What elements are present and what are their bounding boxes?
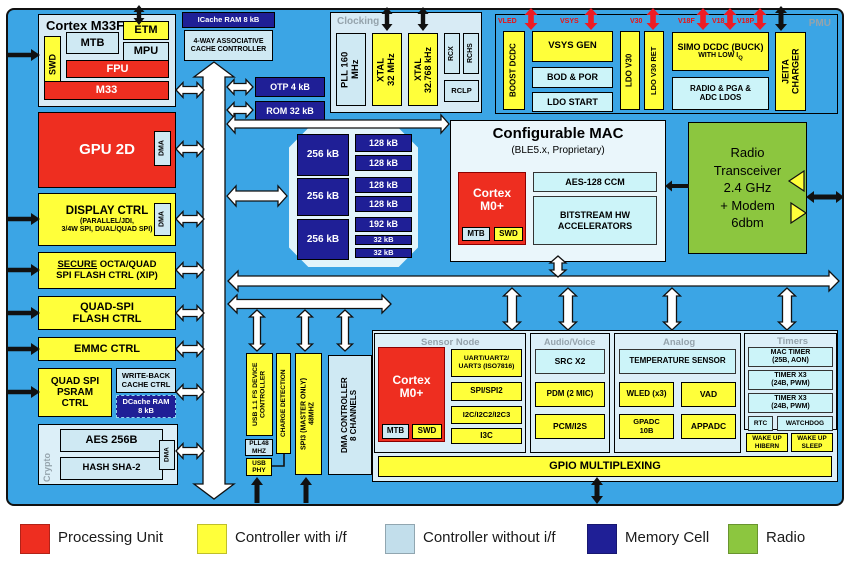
simo-sub: WITH LOW IQ [698, 52, 743, 62]
otp-block: OTP 4 kB [255, 77, 325, 97]
mac-title: Configurable MAC [451, 125, 665, 142]
spi-block: SPI/SPI2 [451, 382, 522, 401]
mtb-block: MTB [66, 32, 119, 54]
pll160-block: PLL 160 MHz [336, 33, 366, 106]
pmu-label: PMU [809, 18, 831, 29]
rail-vsys: VSYS [560, 18, 579, 25]
legend-swatch-memory-cell [587, 524, 617, 554]
charge-detection-block: CHARGE DETECTION [276, 353, 291, 454]
spi3-block: SPI3 (MASTER ONLY) 48MHZ [295, 353, 322, 475]
legend-label-controller-no-if: Controller without i/f [423, 529, 556, 546]
usb-controller-block: USB 1.1 FS DEVICE CONTROLLER [246, 353, 273, 436]
uart-block: UART/UART2/ UART3 (ISO7816) [451, 349, 522, 377]
radio-transceiver-block: Radio Transceiver 2.4 GHz + Modem 6dbm [688, 122, 807, 254]
icache-controller-block: 4-WAY ASSOCIATIVE CACHE CONTROLLER [184, 30, 273, 61]
wakeup-hibern-block: WAKE UP HIBERN [746, 433, 788, 452]
gpu-dma-tab: DMA [154, 131, 171, 166]
rcx-block: RCX [444, 33, 460, 74]
pdm-block: PDM (2 MIC) [535, 382, 605, 407]
audio-voice-label: Audio/Voice [544, 337, 595, 347]
legend-swatch-controller-no-if [385, 524, 415, 554]
clocking-label: Clocking [337, 16, 379, 27]
vad-block: VAD [681, 382, 736, 407]
wakeup-sleep-block: WAKE UP SLEEP [791, 433, 833, 452]
rtc-block: RTC [748, 416, 773, 431]
analog-label: Analog [663, 337, 695, 348]
usb-phy-block: USB PHY [246, 458, 272, 476]
radio-ldos-block: RADIO & PGA & ADC LDOS [672, 77, 769, 110]
legend-swatch-processing-unit [20, 524, 50, 554]
vsys-gen-block: VSYS GEN [532, 31, 613, 62]
secure-flash-line2: SPI FLASH CTRL (XIP) [56, 271, 158, 282]
simo-dcdc-block: SIMO DCDC (BUCK) WITH LOW IQ [672, 32, 769, 71]
mpu-block: MPU [123, 42, 169, 61]
legend-label-controller-if: Controller with i/f [235, 529, 347, 546]
display-ctrl-sub: (PARALLEL/JDI, 3/4W SPI, DUAL/QUAD SPI) [61, 218, 152, 234]
pcm-block: PCM/I2S [535, 414, 605, 439]
mac-swd-block: SWD [494, 227, 523, 241]
legend-label-processing-unit: Processing Unit [58, 529, 163, 546]
mac-cortex-m0-label: Cortex M0+ [459, 187, 525, 214]
ldo-start-block: LDO START [532, 92, 613, 112]
secure-flash-line1: SECURE OCTA/QUAD [57, 260, 156, 271]
appadc-block: APPADC [681, 414, 736, 439]
legend-swatch-radio [728, 524, 758, 554]
i2c-block: I2C/I2C2/I2C3 [451, 406, 522, 424]
ram-cell: 256 kB [297, 134, 349, 176]
secure-flash-ctrl-block: SECURE OCTA/QUAD SPI FLASH CTRL (XIP) [38, 252, 176, 289]
bitstream-accel-block: BITSTREAM HW ACCELERATORS [533, 196, 657, 245]
ram-cell: 256 kB [297, 219, 349, 260]
quad-spi-flash-ctrl-block: QUAD-SPI FLASH CTRL [38, 296, 176, 330]
dcache-ram-block: DCache RAM 8 kB [116, 395, 176, 418]
ldo-v30-ret-block: LDO V30 RET [644, 31, 664, 110]
i3c-block: I3C [451, 428, 522, 444]
apb-fast-label: AMBA APB (FAST) [252, 300, 352, 309]
rail-v18f: V18F [678, 18, 695, 25]
rom-block: ROM 32 kB [255, 101, 325, 121]
writeback-cache-ctrl-block: WRITE-BACK CACHE CTRL [116, 368, 176, 393]
src-block: SRC X2 [535, 349, 605, 374]
jeita-charger-block: JEITA CHARGER [775, 32, 806, 111]
ram-cell: 128 kB [355, 155, 412, 171]
simo-title: SIMO DCDC (BUCK) [678, 42, 764, 52]
hash-sha2-block: HASH SHA-2 [60, 457, 163, 480]
rail-v18: V18 [712, 18, 724, 25]
dma-controller-block: DMA CONTROLLER 8 CHANNELS [328, 355, 372, 475]
mac-timer-block: MAC TIMER (25B, AON) [748, 347, 833, 367]
timers-label: Timers [777, 336, 808, 347]
gpio-multiplexing-bar: GPIO MULTIPLEXING [378, 456, 832, 477]
display-dma-tab: DMA [154, 203, 171, 236]
rchs-block: RCHS [463, 33, 479, 74]
ldo-v30-block: LDO V30 [620, 31, 640, 110]
cortex-m33f-title: Cortex M33F [46, 18, 124, 33]
legend-swatch-controller-if [197, 524, 227, 554]
fpu-block: FPU [66, 60, 169, 78]
rclp-block: RCLP [444, 80, 479, 102]
etm-block: ETM [123, 21, 169, 40]
crypto-dma-tab: DMA [159, 440, 175, 470]
boost-dcdc-block: BOOST DCDC [503, 31, 525, 110]
sensor-mtb-block: MTB [382, 424, 409, 439]
apb-slow-label: AMBA APB (SLOW) [468, 277, 578, 286]
ram-cell: 128 kB [355, 177, 412, 193]
m33-core-block: M33 [44, 81, 169, 100]
display-ctrl-title: DISPLAY CTRL [66, 205, 148, 218]
gpadc-block: GPADC 10B [619, 414, 674, 439]
ram-cell: 128 kB [355, 196, 412, 212]
crypto-label: Crypto [42, 430, 52, 482]
bod-por-block: BOD & POR [532, 67, 613, 88]
mac-subtitle: (BLE5.x, Proprietary) [451, 145, 665, 156]
timer-x3-block: TIMER X3 (24B, PWM) [748, 393, 833, 413]
icache-ram-block: ICache RAM 8 kB [182, 12, 275, 28]
rail-vled: VLED [498, 18, 517, 25]
ahb-bus-label: MULTILAYER AMBA AHB BUS [205, 185, 223, 395]
sensor-swd-block: SWD [412, 424, 442, 439]
temperature-sensor-block: TEMPERATURE SENSOR [619, 349, 736, 374]
ram-cell: 32 kB [355, 248, 412, 258]
aes128-ccm-block: AES-128 CCM [533, 172, 657, 192]
watchdog-block: WATCHDOG [777, 416, 833, 431]
wled-block: WLED (x3) [619, 382, 674, 407]
timer-x3-block: TIMER X3 (24B, PWM) [748, 370, 833, 390]
rail-v18p: V18P [737, 18, 754, 25]
ram-cell: 256 kB [297, 178, 349, 216]
qspi-psram-ctrl-block: QUAD SPI PSRAM CTRL [38, 368, 112, 417]
emmc-ctrl-block: EMMC CTRL [38, 337, 176, 361]
ram-cell: 192 kB [355, 217, 412, 232]
soc-block-diagram: Cortex M33F Clocking PMU Configurable MA… [0, 0, 850, 561]
mac-mtb-block: MTB [462, 227, 490, 241]
aes256-block: AES 256B [60, 429, 163, 452]
legend-label-radio: Radio [766, 529, 805, 546]
legend-label-memory-cell: Memory Cell [625, 529, 709, 546]
rail-v30: V30 [630, 18, 642, 25]
ram-cell: 128 kB [355, 134, 412, 152]
ram-cell: 32 kB [355, 235, 412, 245]
xtal32k-block: XTAL 32.768 kHz [408, 33, 438, 106]
xtal32m-block: XTAL 32 MHz [372, 33, 402, 106]
pll48-block: PLL48 MHZ [245, 439, 273, 456]
sensor-cortex-m0-label: Cortex M0+ [379, 374, 444, 401]
